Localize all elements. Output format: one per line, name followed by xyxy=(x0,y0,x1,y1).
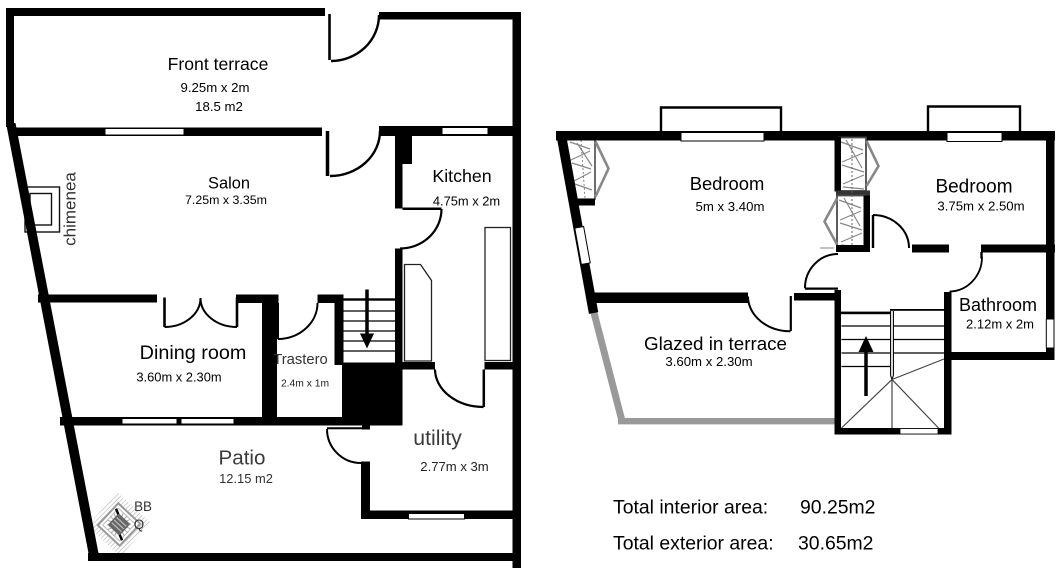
svg-text:BB: BB xyxy=(134,499,152,514)
svg-text:Kitchen: Kitchen xyxy=(432,166,491,186)
svg-text:5m x 3.40m: 5m x 3.40m xyxy=(696,199,765,214)
svg-text:Salon: Salon xyxy=(208,175,250,193)
svg-text:9.25m x 2m: 9.25m x 2m xyxy=(181,80,250,95)
svg-text:Bathroom: Bathroom xyxy=(959,295,1037,315)
svg-text:3.75m x 2.50m: 3.75m x 2.50m xyxy=(937,199,1024,214)
svg-text:chimenea: chimenea xyxy=(61,172,80,246)
svg-text:7.25m x 3.35m: 7.25m x 3.35m xyxy=(185,193,267,207)
svg-text:Bedroom: Bedroom xyxy=(935,177,1012,198)
svg-text:Total interior area:: Total interior area: xyxy=(613,497,768,519)
svg-text:12.15 m2: 12.15 m2 xyxy=(219,471,273,486)
svg-text:3.60m x 2.30m: 3.60m x 2.30m xyxy=(136,370,221,385)
svg-text:Bedroom: Bedroom xyxy=(690,173,765,194)
svg-text:Dining room: Dining room xyxy=(140,342,247,364)
svg-text:3.60m x 2.30m: 3.60m x 2.30m xyxy=(665,354,752,369)
svg-text:Q: Q xyxy=(134,517,144,532)
svg-text:Trastero: Trastero xyxy=(273,352,328,368)
svg-text:2.77m x 3m: 2.77m x 3m xyxy=(420,459,488,474)
svg-text:Total exterior area:: Total exterior area: xyxy=(613,533,774,555)
svg-text:30.65m2: 30.65m2 xyxy=(798,533,873,555)
svg-text:4.75m x 2m: 4.75m x 2m xyxy=(433,194,500,209)
svg-text:Glazed in terrace: Glazed in terrace xyxy=(644,333,787,354)
svg-text:2.4m x 1m: 2.4m x 1m xyxy=(281,379,329,390)
svg-text:Patio: Patio xyxy=(219,447,266,470)
svg-text:utility: utility xyxy=(413,426,462,450)
svg-text:Front terrace: Front terrace xyxy=(168,54,269,74)
svg-text:90.25m2: 90.25m2 xyxy=(800,497,875,519)
svg-text:2.12m x 2m: 2.12m x 2m xyxy=(966,317,1034,332)
svg-text:18.5 m2: 18.5 m2 xyxy=(195,99,243,114)
